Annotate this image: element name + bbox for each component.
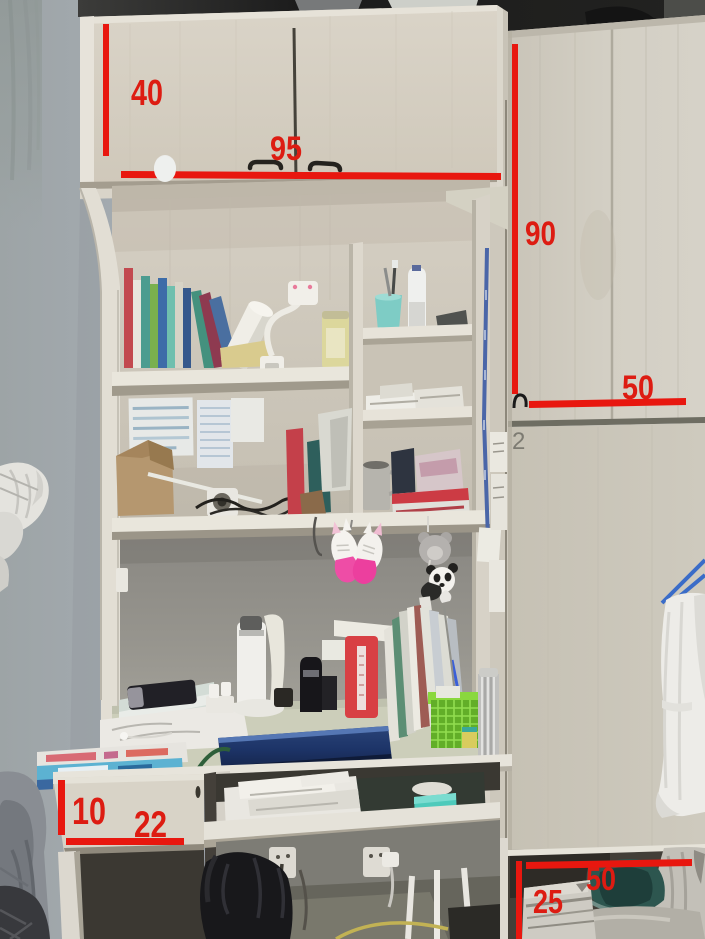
svg-text:22: 22 [134, 804, 167, 845]
svg-text:2: 2 [512, 428, 525, 455]
svg-text:50: 50 [622, 369, 654, 407]
svg-text:40: 40 [131, 72, 163, 113]
svg-text:10: 10 [72, 791, 106, 833]
svg-text:95: 95 [270, 130, 302, 168]
svg-text:25: 25 [533, 883, 563, 920]
svg-text:90: 90 [525, 215, 556, 253]
svg-text:50: 50 [586, 861, 616, 897]
